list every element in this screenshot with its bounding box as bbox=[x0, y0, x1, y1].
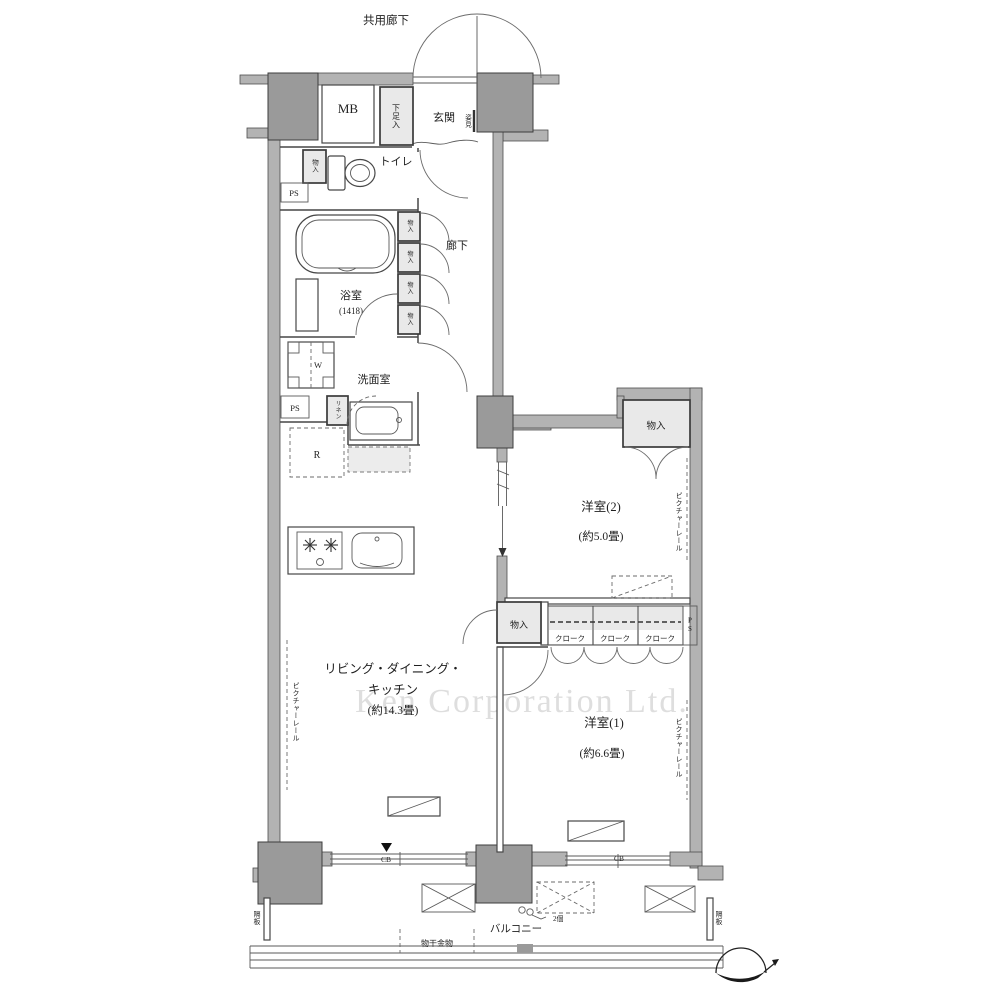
laundry-hardware-label: 物干金物 bbox=[421, 938, 453, 948]
cb-label: CB bbox=[614, 854, 624, 863]
cloak-label: クローク bbox=[555, 634, 585, 643]
ldk-picture-rail-label: ピクチャーレール bbox=[292, 682, 300, 742]
hallway-label: 廊下 bbox=[446, 238, 468, 252]
ldk-name-line1: リビング・ダイニング・ bbox=[324, 661, 462, 676]
upper-cabinet bbox=[348, 447, 410, 472]
toilet-ps-label: PS bbox=[289, 188, 299, 198]
bedroom2-size-label: (約5.0畳) bbox=[578, 529, 623, 543]
kitchen-counter bbox=[288, 527, 414, 574]
toilet-tank bbox=[328, 156, 345, 190]
washroom-label: 洗面室 bbox=[358, 372, 391, 386]
bathroom-size-label: (1418) bbox=[339, 306, 363, 316]
partition-board bbox=[707, 898, 713, 940]
hall-storage-label: 物入 bbox=[406, 219, 413, 233]
shoe-box-label: 下足入 bbox=[392, 103, 401, 129]
washer-label: W bbox=[314, 360, 322, 370]
toilet-label: トイレ bbox=[380, 156, 413, 168]
washroom-ps-label: PS bbox=[290, 403, 300, 413]
bedroom2-picture-rail-label: ピクチャーレール bbox=[675, 492, 683, 552]
cloak-label: クローク bbox=[645, 634, 675, 643]
hall-storage-label: 物入 bbox=[406, 312, 413, 326]
common-corridor-label: 共用廊下 bbox=[363, 13, 409, 27]
hall-storage-label: 物入 bbox=[406, 250, 413, 264]
partition-label: 隔板 bbox=[715, 910, 723, 927]
meter-box-label: MB bbox=[338, 101, 359, 116]
bedroom2-name-label: 洋室(2) bbox=[581, 499, 621, 514]
balcony-drain bbox=[517, 944, 533, 953]
toilet-bowl bbox=[345, 160, 375, 187]
ldk-size-label: (約14.3畳) bbox=[368, 703, 419, 717]
bedroom1-name-label: 洋室(1) bbox=[584, 715, 624, 730]
partition-label: 隔板 bbox=[253, 910, 261, 927]
balcony-label: バルコニー bbox=[490, 923, 542, 935]
bedroom1-size-label: (約6.6畳) bbox=[579, 746, 624, 760]
refrigerator-label: R bbox=[314, 450, 321, 461]
hall-storage-label: 物入 bbox=[406, 281, 413, 295]
floor-plan-drawing: Ken Corporation Ltd. bbox=[0, 0, 1000, 1000]
ldk-name-line2: キッチン bbox=[368, 683, 418, 697]
faucet-note-label: 2個 bbox=[553, 914, 564, 923]
bedroom1-ps-label: PS bbox=[686, 617, 694, 634]
entrance-label: 玄関 bbox=[433, 110, 455, 124]
floor-plan-page: Ken Corporation Ltd. bbox=[0, 0, 1000, 1000]
bedroom1-picture-rail-label: ピクチャーレール bbox=[675, 718, 683, 778]
bathtub bbox=[296, 215, 395, 273]
bath-counter bbox=[296, 279, 318, 331]
bedroom2-storage-label: 物入 bbox=[646, 420, 666, 432]
bathroom-label: 浴室 bbox=[340, 288, 362, 302]
linen-label: リネン bbox=[334, 401, 341, 420]
cb-label: CB bbox=[381, 855, 391, 864]
cloak-label: クローク bbox=[600, 634, 630, 643]
partition-board bbox=[264, 898, 270, 940]
ldk-storage-label: 物入 bbox=[510, 619, 528, 630]
